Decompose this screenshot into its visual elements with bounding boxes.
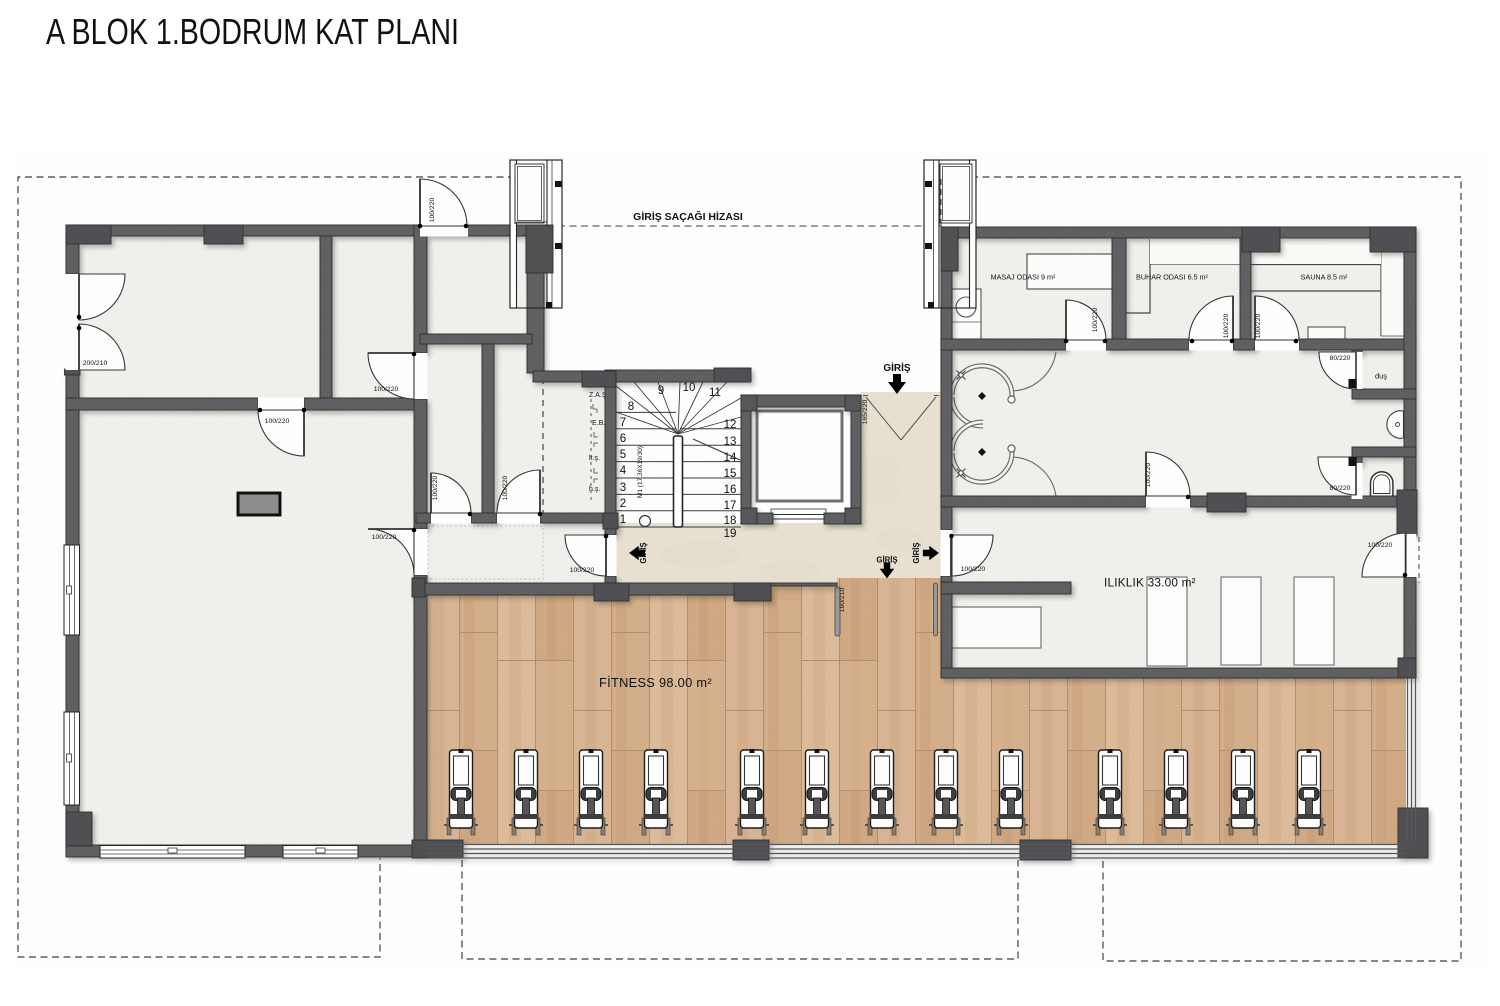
- svg-text:A BLOK 1.BODRUM KAT PLANI: A BLOK 1.BODRUM KAT PLANI: [46, 11, 459, 52]
- svg-text:100/220: 100/220: [372, 534, 397, 541]
- svg-text:FİTNESS 98.00 m²: FİTNESS 98.00 m²: [599, 675, 712, 690]
- svg-text:100/220: 100/220: [429, 198, 436, 223]
- svg-text:100/220: 100/220: [1255, 314, 1262, 339]
- svg-text:80/220: 80/220: [1330, 485, 1351, 492]
- svg-text:100/220: 100/220: [1223, 314, 1230, 339]
- svg-text:100/220: 100/220: [570, 567, 595, 574]
- svg-text:100/220: 100/220: [374, 386, 399, 393]
- svg-text:100/220: 100/220: [265, 418, 290, 425]
- svg-text:100/220: 100/220: [432, 476, 439, 501]
- svg-text:SAUNA 8.5 m²: SAUNA 8.5 m²: [1301, 273, 1348, 282]
- svg-text:ILIKLIK 33.00 m²: ILIKLIK 33.00 m²: [1104, 576, 1196, 590]
- svg-text:100/220: 100/220: [961, 566, 986, 573]
- svg-text:100/220: 100/220: [1368, 542, 1393, 549]
- svg-text:MASAJ ODASI 9 m²: MASAJ ODASI 9 m²: [991, 273, 1056, 282]
- svg-text:100/220: 100/220: [502, 476, 509, 501]
- svg-text:165/220: 165/220: [862, 400, 869, 425]
- svg-text:GİRİŞ SAÇAĞI HİZASI: GİRİŞ SAÇAĞI HİZASI: [633, 210, 743, 223]
- svg-text:GİRİŞ: GİRİŞ: [912, 542, 921, 563]
- svg-text:100/220: 100/220: [1092, 308, 1099, 333]
- svg-text:100/220: 100/220: [1145, 463, 1152, 488]
- svg-text:BUHAR ODASI 6.5 m²: BUHAR ODASI 6.5 m²: [1136, 273, 1208, 282]
- svg-text:duş: duş: [1375, 372, 1387, 381]
- svg-text:200/210: 200/210: [83, 360, 108, 367]
- svg-text:80/220: 80/220: [1330, 355, 1351, 362]
- svg-text:GİRİŞ: GİRİŞ: [883, 361, 911, 374]
- svg-text:160/210: 160/210: [839, 588, 846, 613]
